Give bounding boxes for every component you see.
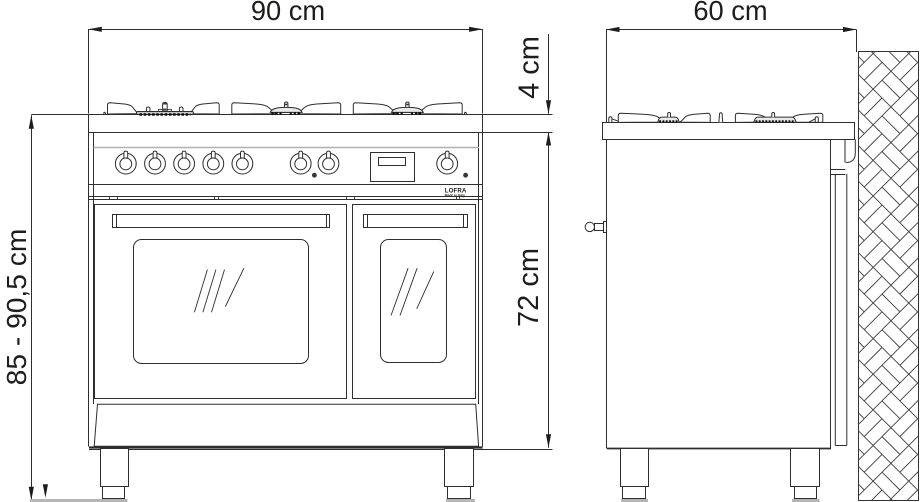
svg-text:85 - 90,5 cm: 85 - 90,5 cm bbox=[0, 229, 32, 386]
svg-text:60 cm: 60 cm bbox=[693, 0, 767, 26]
svg-text:72 cm: 72 cm bbox=[513, 248, 545, 327]
svg-text:4 cm: 4 cm bbox=[514, 36, 546, 99]
svg-text:90 cm: 90 cm bbox=[251, 0, 325, 26]
